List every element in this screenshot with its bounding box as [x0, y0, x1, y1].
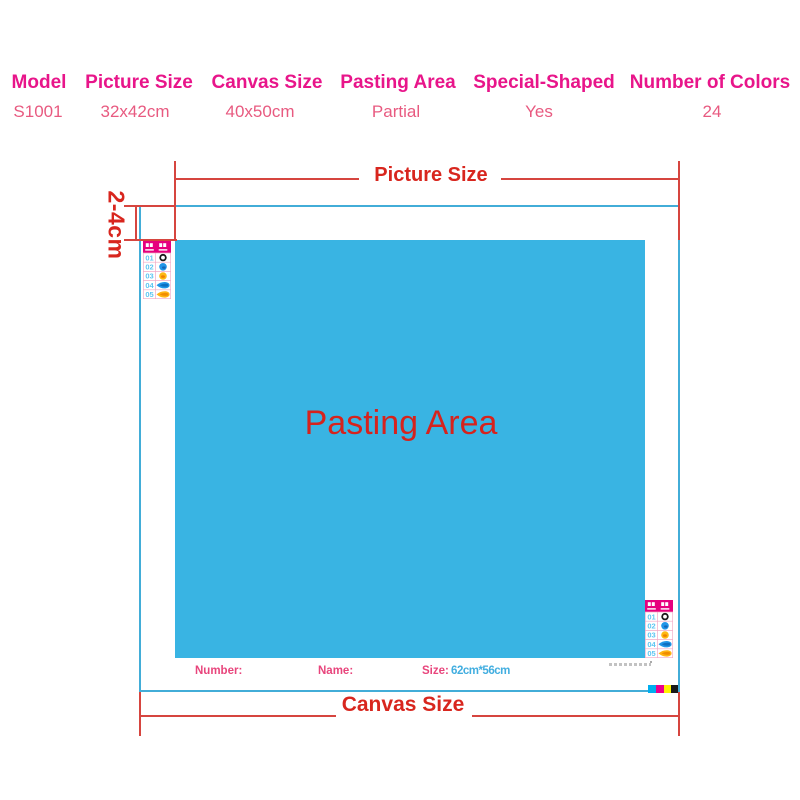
svg-text:04: 04: [145, 281, 154, 290]
svg-text:02: 02: [647, 622, 655, 631]
svg-text:02: 02: [145, 263, 153, 272]
svg-text:03: 03: [647, 631, 655, 640]
svg-text:05: 05: [647, 649, 655, 658]
svg-text:01: 01: [647, 612, 655, 621]
svg-text:04: 04: [647, 640, 656, 649]
svg-text:05: 05: [145, 290, 153, 299]
svg-text:01: 01: [145, 253, 153, 262]
svg-text:03: 03: [145, 272, 153, 281]
